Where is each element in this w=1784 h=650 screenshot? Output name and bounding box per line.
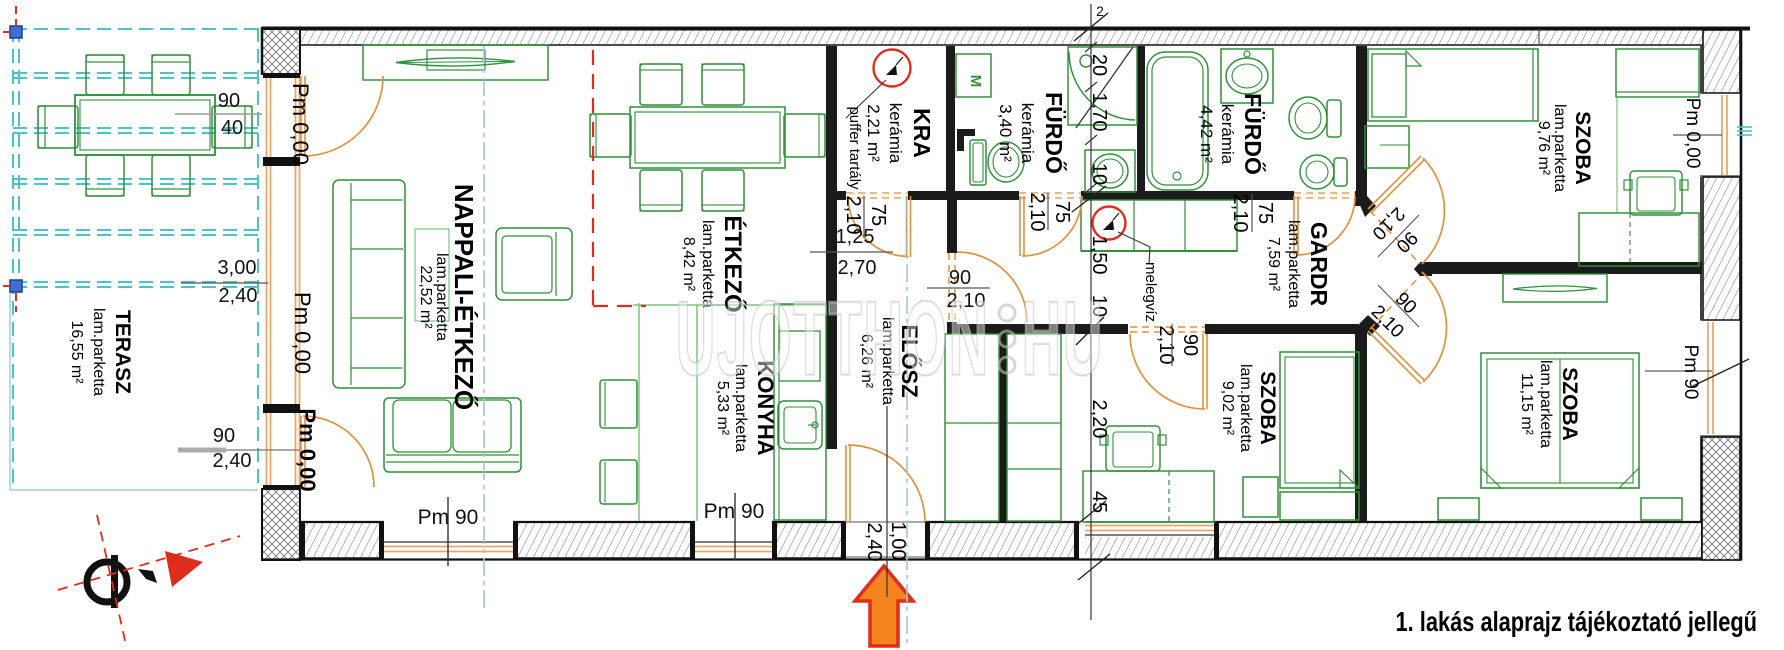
svg-text:Pm 90: Pm 90	[1680, 345, 1701, 400]
svg-text:2,10: 2,10	[1229, 194, 1251, 233]
svg-text:kerámia: kerámia	[1218, 104, 1237, 165]
svg-text:SZOBA: SZOBA	[1558, 367, 1581, 441]
svg-text:4,42 m²: 4,42 m²	[1197, 105, 1216, 163]
svg-text:2: 2	[1096, 3, 1104, 19]
svg-text:3,40 m²: 3,40 m²	[996, 104, 1015, 162]
svg-text:lam.parketta: lam.parketta	[1537, 360, 1554, 448]
svg-text:SZOBA: SZOBA	[1571, 111, 1594, 185]
svg-text:1,00: 1,00	[887, 522, 909, 561]
svg-text:GARDR: GARDR	[1306, 222, 1332, 307]
svg-text:2,10: 2,10	[1155, 326, 1177, 365]
svg-text:Pm 90: Pm 90	[704, 500, 765, 523]
svg-text:7,59 m²: 7,59 m²	[1265, 237, 1282, 292]
svg-text:2,20: 2,20	[1088, 400, 1110, 439]
svg-text:Pm 0,00: Pm 0,00	[290, 292, 315, 374]
svg-text:TERASZ: TERASZ	[111, 310, 134, 394]
svg-text:2,10: 2,10	[842, 196, 864, 235]
svg-text:NAPPALI-ÉTKEZŐ: NAPPALI-ÉTKEZŐ	[449, 184, 479, 410]
svg-text:kerámia: kerámia	[886, 103, 905, 164]
svg-text:UJOTTHON: UJOTTHON	[676, 280, 990, 397]
svg-text:90: 90	[218, 90, 240, 112]
svg-text:FÜRDŐ: FÜRDŐ	[1041, 92, 1068, 174]
svg-text:75: 75	[1051, 201, 1073, 223]
svg-text:9,76 m²: 9,76 m²	[1535, 121, 1552, 176]
svg-text:16,55 m²: 16,55 m²	[68, 320, 85, 384]
svg-text:3,00: 3,00	[218, 257, 257, 279]
svg-text:90: 90	[1179, 334, 1201, 356]
svg-text:lam.parketta: lam.parketta	[433, 253, 450, 341]
svg-text:Pm 0,00: Pm 0,00	[1682, 98, 1703, 169]
svg-text:75: 75	[1254, 202, 1276, 224]
svg-text:9,02 m²: 9,02 m²	[1219, 381, 1236, 436]
svg-text:1,70: 1,70	[1088, 93, 1110, 132]
svg-text:22,52 m²: 22,52 m²	[417, 265, 434, 329]
svg-text:2,21 m²: 2,21 m²	[864, 104, 883, 162]
svg-text:FÜRDŐ: FÜRDŐ	[1240, 93, 1267, 175]
svg-text:75: 75	[867, 204, 889, 226]
svg-text:45: 45	[1088, 491, 1110, 513]
svg-text:lam.parketta: lam.parketta	[1237, 364, 1254, 452]
svg-text:20: 20	[1088, 54, 1110, 76]
svg-text:lam.parketta: lam.parketta	[90, 308, 107, 396]
svg-text:2,40: 2,40	[219, 285, 258, 307]
svg-text:90: 90	[213, 425, 235, 447]
svg-text:2,40: 2,40	[863, 523, 885, 562]
svg-text:melegvíz: melegvíz	[1142, 262, 1159, 322]
svg-text:Pm 0,00: Pm 0,00	[288, 83, 313, 165]
svg-text:KRA: KRA	[909, 108, 935, 158]
svg-text:lam.parketta: lam.parketta	[1285, 220, 1302, 308]
svg-text:1,50: 1,50	[1088, 236, 1110, 275]
svg-text:2,70: 2,70	[838, 257, 877, 279]
svg-text:kerámia: kerámia	[1018, 103, 1037, 164]
svg-text:Pm 0,00: Pm 0,00	[295, 408, 320, 491]
svg-text:HU: HU	[1022, 280, 1104, 397]
svg-text:11,15 m²: 11,15 m²	[1518, 373, 1535, 436]
svg-text:2,40: 2,40	[213, 450, 252, 472]
svg-text:lam.parketta: lam.parketta	[1551, 104, 1568, 192]
svg-text:puffer tartály: puffer tartály	[846, 106, 863, 190]
svg-text:10: 10	[1088, 163, 1110, 185]
svg-text:M: M	[967, 75, 984, 88]
svg-text:40: 40	[221, 117, 243, 139]
svg-text:SZOBA: SZOBA	[1256, 371, 1279, 445]
svg-text:2,10: 2,10	[1026, 193, 1048, 232]
svg-text:1. lakás alaprajz tájékoztató: 1. lakás alaprajz tájékoztató jellegű	[1395, 606, 1757, 637]
